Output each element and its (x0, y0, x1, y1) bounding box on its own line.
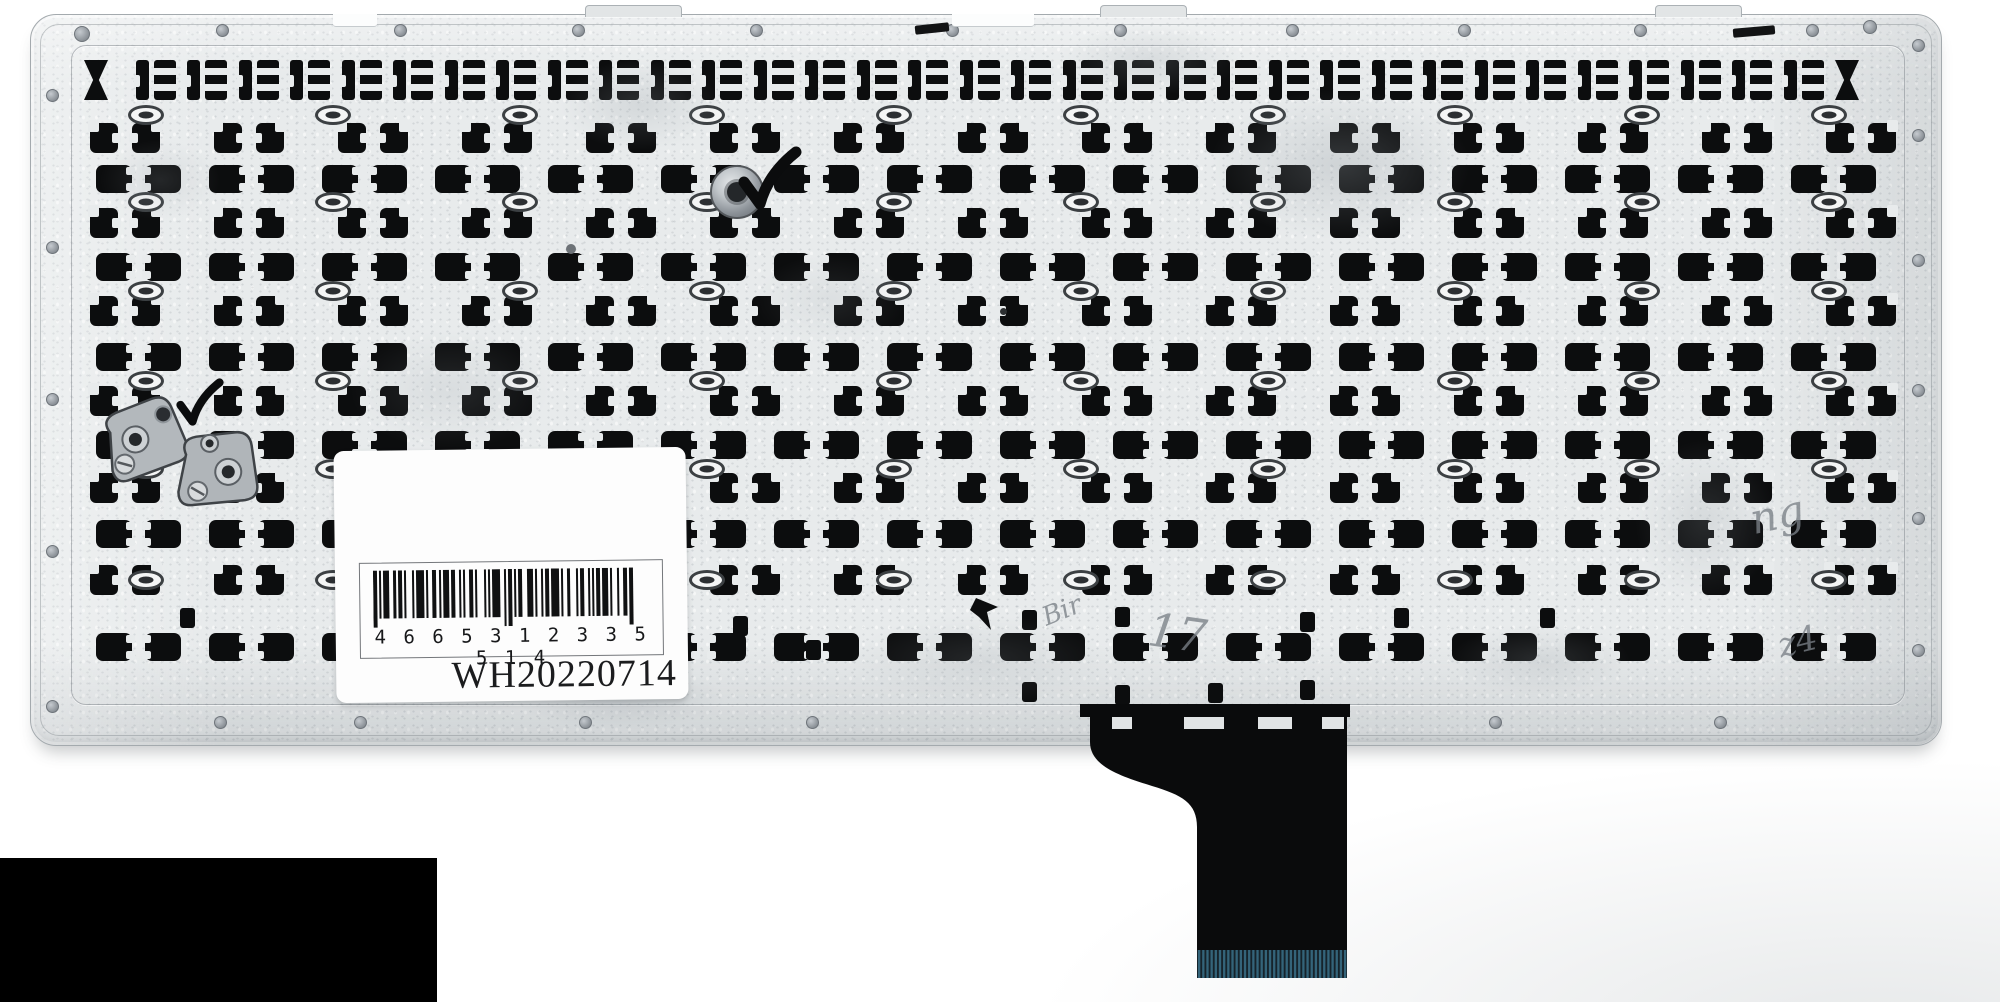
clip-cutout (1496, 123, 1524, 153)
key-clip-slot (214, 123, 284, 153)
clip-cutout (936, 431, 972, 459)
cable-clamp-bar (1080, 704, 1350, 717)
clip-cutout (1452, 343, 1488, 371)
barcode-bar (629, 568, 634, 625)
clip-cutout (187, 60, 200, 100)
clip-cutout (239, 60, 252, 100)
cable-pin (1302, 950, 1304, 978)
key-clip-slot (774, 431, 859, 459)
edge-streak (915, 22, 950, 35)
clip-cutout (214, 565, 242, 595)
ink-blob-mark (970, 598, 1000, 634)
eyelet-ring (1437, 570, 1473, 590)
key-clip-slot (1113, 431, 1198, 459)
cable-pin (1323, 950, 1325, 978)
clip-cutout (209, 253, 245, 281)
key-clip-slot (887, 431, 972, 459)
small-cutout (180, 608, 195, 628)
clip-cutout (1275, 253, 1311, 281)
hinge-bracket (103, 394, 191, 482)
clip-cutout (496, 60, 509, 100)
key-clip-slot (834, 208, 904, 238)
barcode-bar (451, 570, 456, 618)
clip-cutout (256, 565, 284, 595)
clip-cutout (1000, 343, 1036, 371)
key-clip-slot (1452, 253, 1537, 281)
key-clip-slot (1678, 633, 1763, 661)
rivet (572, 24, 585, 37)
clip-cutout (96, 343, 132, 371)
clip-cutout (258, 520, 294, 548)
key-clip-slot (1835, 60, 1859, 100)
eyelet-ring (1624, 105, 1660, 125)
clip-cutout (1206, 208, 1234, 238)
clip-cutout (256, 296, 284, 326)
key-clip-slot (1226, 253, 1311, 281)
clip-cutout (1113, 343, 1149, 371)
surface-smudge (560, 60, 720, 150)
key-clip-slot (1000, 431, 1085, 459)
cable-pin (1327, 950, 1329, 978)
clip-cutout (1496, 473, 1524, 503)
clip-cutout (145, 343, 181, 371)
clip-cutout (1162, 165, 1198, 193)
clip-cutout (1493, 60, 1515, 100)
clip-cutout (1868, 473, 1896, 503)
eyelet-ring (876, 459, 912, 479)
clip-cutout (214, 123, 242, 153)
clip-cutout (1614, 431, 1650, 459)
eyelet-ring (128, 570, 164, 590)
clip-cutout (887, 343, 923, 371)
clip-cutout (1702, 296, 1730, 326)
barcode-bar (551, 568, 560, 616)
barcode-sticker: 4 6 6 5 3 1 2 3 3 5 5 1 4 WH20220714 (333, 447, 688, 703)
key-clip-slot (96, 343, 181, 371)
key-clip-slot (754, 60, 794, 100)
rivet (750, 24, 763, 37)
key-clip-slot (1339, 633, 1424, 661)
clip-cutout (1162, 520, 1198, 548)
clip-cutout (1113, 165, 1149, 193)
clip-cutout (1496, 296, 1524, 326)
clip-cutout (1681, 60, 1694, 100)
clip-cutout (1049, 253, 1085, 281)
key-clip-slot (209, 343, 294, 371)
clip-cutout (823, 431, 859, 459)
clip-cutout (1452, 520, 1488, 548)
cable-body (1090, 717, 1347, 950)
key-clip-slot (322, 253, 407, 281)
cable-pin (1269, 950, 1271, 978)
clip-cutout (1452, 253, 1488, 281)
clip-cutout (1049, 431, 1085, 459)
eyelet-ring (1811, 570, 1847, 590)
key-clip-slot (187, 60, 227, 100)
clip-cutout (1388, 520, 1424, 548)
barcode-bar (459, 570, 462, 618)
key-clip-slot (1330, 473, 1400, 503)
clip-cutout (1124, 123, 1152, 153)
clip-cutout (1441, 60, 1463, 100)
key-clip-slot (1330, 386, 1400, 416)
barcode-bar (483, 569, 486, 617)
cable-pin (1265, 950, 1267, 978)
clip-cutout (338, 123, 366, 153)
clip-cutout (380, 123, 408, 153)
clip-cutout (1501, 253, 1537, 281)
clip-cutout (338, 208, 366, 238)
eyelet-ring (1437, 459, 1473, 479)
clip-cutout (1868, 208, 1896, 238)
clip-cutout (1082, 208, 1110, 238)
clip-cutout (710, 520, 746, 548)
barcode-bar (443, 570, 450, 618)
clip-cutout (256, 208, 284, 238)
clip-cutout (823, 520, 859, 548)
eyelet-ring (1437, 371, 1473, 391)
barcode-bar (610, 568, 613, 616)
clip-cutout (1049, 520, 1085, 548)
clip-cutout (774, 520, 810, 548)
key-clip-slot (214, 296, 284, 326)
clip-cutout (958, 565, 986, 595)
clip-cutout (1578, 296, 1606, 326)
eyelet-ring (128, 105, 164, 125)
cable-pin (1256, 950, 1258, 978)
clip-cutout (958, 296, 986, 326)
eyelet-ring (1811, 105, 1847, 125)
key-clip-slot (1826, 123, 1896, 153)
clip-cutout (661, 343, 697, 371)
clip-cutout (710, 123, 738, 153)
key-clip-slot (214, 208, 284, 238)
clip-cutout (393, 60, 406, 100)
clip-cutout (1578, 565, 1606, 595)
rivet (46, 393, 59, 406)
clip-cutout (936, 343, 972, 371)
clip-cutout (823, 343, 859, 371)
clip-cutout (214, 296, 242, 326)
small-cutout (806, 640, 821, 660)
key-clip-slot (1791, 431, 1876, 459)
clip-cutout (908, 60, 921, 100)
key-clip-slot (1330, 296, 1400, 326)
key-clip-slot (1000, 343, 1085, 371)
edge-notch (333, 14, 377, 27)
eyelet-ring (315, 105, 351, 125)
eyelet-ring (689, 281, 725, 301)
clip-cutout (834, 208, 862, 238)
key-clip-slot (1113, 520, 1198, 548)
cable-pin (1202, 950, 1204, 978)
clip-cutout (1388, 633, 1424, 661)
key-clip-slot (435, 253, 520, 281)
clip-cutout (1678, 165, 1714, 193)
key-clip-slot (496, 60, 536, 100)
clip-cutout (1000, 565, 1028, 595)
rivet (214, 716, 227, 729)
clip-cutout (462, 123, 490, 153)
clip-cutout (1578, 123, 1606, 153)
clip-cutout (145, 633, 181, 661)
clip-cutout (90, 565, 118, 595)
clip-cutout (1275, 520, 1311, 548)
key-clip-slot (958, 565, 1028, 595)
clip-cutout (1732, 60, 1745, 100)
key-clip-slot (774, 343, 859, 371)
key-clip-slot (1565, 165, 1650, 193)
clip-cutout (504, 123, 532, 153)
eyelet-ring (1063, 192, 1099, 212)
clip-cutout (154, 60, 176, 100)
eyelet-ring (1063, 105, 1099, 125)
eyelet-ring (689, 459, 725, 479)
clip-cutout (1124, 386, 1152, 416)
clip-cutout (1750, 60, 1772, 100)
key-clip-slot (1578, 208, 1648, 238)
cable-pin (1319, 950, 1321, 978)
clip-cutout (661, 165, 697, 193)
eyelet-ring (502, 105, 538, 125)
key-clip-slot (84, 60, 108, 100)
rivet (1912, 384, 1925, 397)
clip-cutout (752, 565, 780, 595)
clip-cutout (857, 60, 870, 100)
key-clip-slot (774, 520, 859, 548)
barcode-bar (416, 570, 425, 618)
clip-cutout (1113, 431, 1149, 459)
rivet (216, 24, 229, 37)
barcode-bar (463, 570, 466, 618)
eyelet-ring (1624, 281, 1660, 301)
barcode-bar (379, 571, 382, 619)
barcode-bar (526, 569, 533, 617)
clip-cutout (1791, 431, 1827, 459)
clip-cutout (435, 165, 471, 193)
eyelet-ring (1437, 281, 1473, 301)
cable-pin (1219, 950, 1221, 978)
rivet (1863, 20, 1877, 34)
eyelet-ring (1811, 192, 1847, 212)
key-clip-slot (548, 343, 633, 371)
eyelet-ring (315, 281, 351, 301)
clip-cutout (1339, 431, 1375, 459)
key-clip-slot (887, 165, 972, 193)
key-clip-slot (887, 253, 972, 281)
clip-cutout (1744, 123, 1772, 153)
barcode-bar (373, 571, 378, 628)
clip-cutout (1678, 633, 1714, 661)
clip-cutout (586, 296, 614, 326)
clip-cutout (96, 633, 132, 661)
key-clip-slot (710, 473, 780, 503)
key-clip-slot (1475, 60, 1515, 100)
clip-cutout (462, 208, 490, 238)
small-cutout (1115, 607, 1130, 627)
clip-cutout (710, 296, 738, 326)
clip-cutout (1029, 60, 1051, 100)
clip-cutout (1226, 253, 1262, 281)
barcode-bar (561, 568, 564, 616)
cable-pin (1198, 950, 1200, 978)
key-clip-slot (1226, 343, 1311, 371)
key-clip-slot (209, 253, 294, 281)
clip-cutout (1339, 633, 1375, 661)
clip-cutout (1496, 565, 1524, 595)
hinge-bracket-group (92, 388, 282, 518)
cable-pin (1248, 950, 1250, 978)
barcode-bar (580, 568, 585, 616)
barcode-bar (412, 570, 415, 618)
eyelet-ring (876, 192, 912, 212)
cable-pin (1344, 950, 1346, 978)
eyelet-ring (128, 281, 164, 301)
cable-pin (1206, 950, 1208, 978)
clip-cutout (1702, 386, 1730, 416)
barcode-bar (383, 570, 390, 618)
clip-cutout (1868, 123, 1896, 153)
clip-cutout (322, 253, 358, 281)
key-clip-slot (1565, 253, 1650, 281)
clip-cutout (90, 208, 118, 238)
surface-dot (1000, 308, 1007, 315)
clip-cutout (1699, 60, 1721, 100)
clip-cutout (1206, 386, 1234, 416)
surface-smudge (1210, 90, 1470, 240)
clip-cutout (1275, 431, 1311, 459)
rivet (1458, 24, 1471, 37)
eyelet-ring (1624, 371, 1660, 391)
clip-cutout (1727, 343, 1763, 371)
key-clip-slot (1791, 343, 1876, 371)
barcode-bar (514, 569, 517, 617)
rivet (46, 545, 59, 558)
clip-cutout (371, 253, 407, 281)
clip-cutout (586, 386, 614, 416)
clip-cutout (978, 60, 1000, 100)
cable-pin (1311, 950, 1313, 978)
barcode-bar (623, 568, 628, 616)
edge-tab (585, 5, 682, 17)
clip-cutout (1784, 60, 1797, 100)
eyelet-ring (1811, 281, 1847, 301)
key-clip-slot (1702, 123, 1772, 153)
eyelet-ring (502, 281, 538, 301)
clip-cutout (1000, 473, 1028, 503)
rivet (1286, 24, 1299, 37)
key-clip-slot (857, 60, 897, 100)
key-clip-slot (1702, 208, 1772, 238)
clip-cutout (1000, 123, 1028, 153)
key-clip-slot (958, 123, 1028, 153)
barcode-bar (596, 568, 601, 616)
clip-cutout (875, 60, 897, 100)
clip-cutout (1565, 343, 1601, 371)
key-clip-slot (1000, 253, 1085, 281)
clip-cutout (1501, 165, 1537, 193)
cable-pin (1223, 950, 1225, 978)
eyelet-ring (689, 570, 725, 590)
clip-cutout (1647, 60, 1669, 100)
clip-cutout (1206, 565, 1234, 595)
key-clip-slot (661, 253, 746, 281)
key-clip-slot (1629, 60, 1669, 100)
clip-cutout (380, 296, 408, 326)
surface-smudge (1450, 625, 1630, 695)
key-clip-slot (96, 520, 181, 548)
cable-pin (1315, 950, 1317, 978)
key-clip-slot (1423, 60, 1463, 100)
clip-cutout (823, 60, 845, 100)
key-clip-slot (239, 60, 279, 100)
clip-cutout (936, 520, 972, 548)
clip-cutout (834, 565, 862, 595)
key-clip-slot (1565, 431, 1650, 459)
clip-cutout (1678, 343, 1714, 371)
clip-cutout (90, 123, 118, 153)
clip-cutout (258, 633, 294, 661)
clip-cutout (338, 296, 366, 326)
barcode-bars (373, 567, 646, 628)
barcode-bar (404, 570, 407, 618)
clip-cutout (371, 165, 407, 193)
rivet (1912, 512, 1925, 525)
clip-cutout (958, 208, 986, 238)
rivet (46, 241, 59, 254)
clip-cutout (1372, 386, 1400, 416)
key-clip-slot (1454, 296, 1524, 326)
clip-cutout (1744, 208, 1772, 238)
cable-pin (1211, 950, 1213, 978)
key-clip-slot (958, 296, 1028, 326)
rivet (1912, 644, 1925, 657)
clip-cutout (1840, 431, 1876, 459)
eyelet-ring (1063, 371, 1099, 391)
clip-cutout (209, 633, 245, 661)
clip-cutout (514, 60, 536, 100)
rivet (74, 26, 90, 42)
clip-cutout (926, 60, 948, 100)
clip-cutout (1565, 165, 1601, 193)
hinge-bracket (177, 426, 264, 513)
clip-cutout (1501, 431, 1537, 459)
clip-cutout (1124, 473, 1152, 503)
key-clip-slot (96, 633, 181, 661)
key-clip-slot (1702, 296, 1772, 326)
clip-cutout (1162, 431, 1198, 459)
barcode-bar (541, 569, 544, 617)
key-clip-slot (1791, 165, 1876, 193)
clip-cutout (1226, 431, 1262, 459)
rivet (1912, 39, 1925, 52)
small-cutout (1394, 608, 1409, 628)
clip-cutout (710, 633, 746, 661)
key-clip-slot (1681, 60, 1721, 100)
key-clip-slot (1452, 520, 1537, 548)
key-clip-slot (1678, 343, 1763, 371)
clip-cutout (1727, 253, 1763, 281)
key-clip-slot (462, 123, 532, 153)
clip-cutout (145, 520, 181, 548)
rivet (1912, 254, 1925, 267)
barcode-bar (438, 570, 441, 618)
barcode-bar (518, 569, 523, 617)
clip-cutout (834, 386, 862, 416)
clip-cutout (960, 60, 973, 100)
clip-cutout (1501, 343, 1537, 371)
key-clip-slot (960, 60, 1000, 100)
